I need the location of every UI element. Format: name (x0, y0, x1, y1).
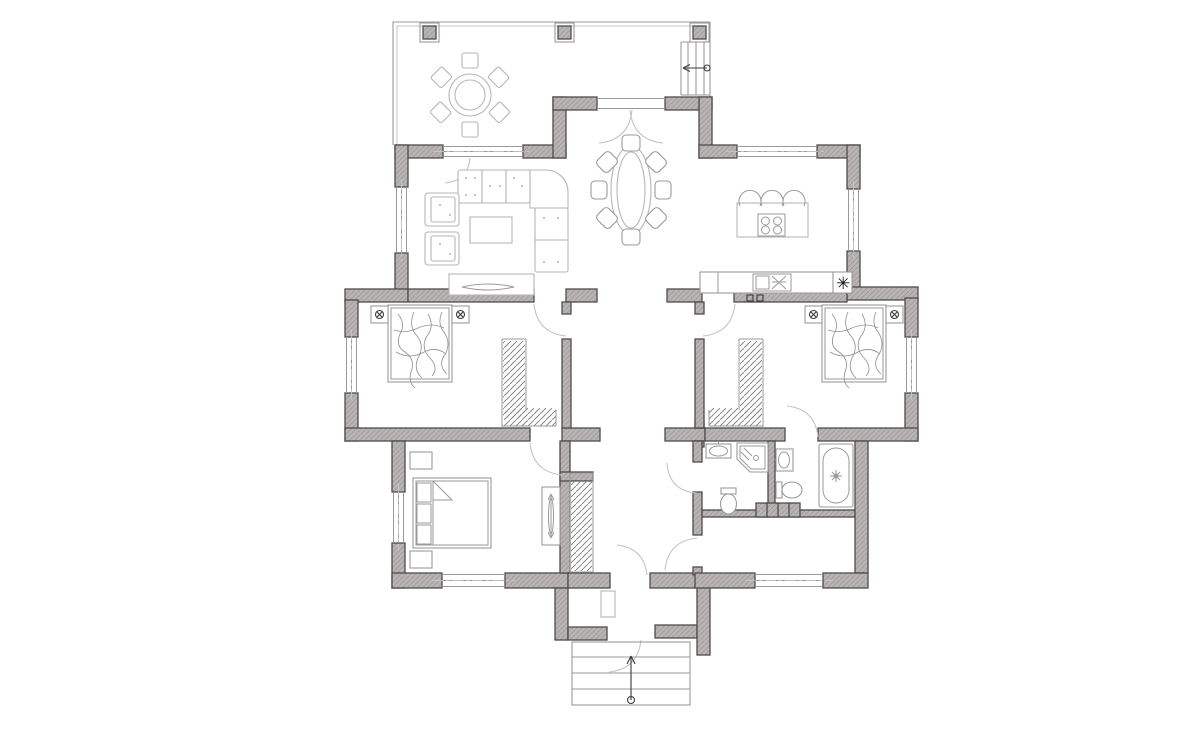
window-bedroom-lower-left (394, 484, 404, 551)
bedroom-left (371, 305, 556, 428)
terrace-round-table (449, 74, 491, 116)
wall (555, 588, 568, 640)
nightstand (410, 452, 432, 469)
door-bedroom-lower (530, 443, 562, 475)
chair (430, 66, 452, 88)
wall (855, 441, 868, 573)
washbasin (706, 442, 731, 458)
chair (595, 206, 619, 230)
toilet (721, 488, 737, 514)
closet (570, 473, 593, 572)
living-room (425, 170, 568, 295)
window-kitchen-right (849, 181, 859, 259)
door-bathroom-ensuite (787, 406, 818, 437)
nightstand-with-lamp (805, 306, 822, 323)
wall (665, 428, 705, 441)
wall (650, 573, 697, 588)
wall (560, 441, 570, 573)
terrace (393, 22, 710, 145)
wall (345, 428, 530, 441)
radiator (756, 503, 800, 517)
corner-shower (737, 443, 768, 472)
partition-wall (695, 339, 704, 428)
entrance-door (609, 640, 641, 672)
window-bedroom-left (347, 329, 357, 401)
chair (488, 101, 510, 123)
chair (644, 150, 668, 174)
dining-chairs (591, 135, 671, 245)
wall (566, 289, 597, 302)
window-bedroom-lower-bottom (432, 575, 515, 587)
chair (622, 135, 640, 151)
kitchen-counter (700, 272, 833, 293)
wall (568, 573, 610, 588)
column (555, 23, 574, 42)
door-bedroom-left (534, 304, 566, 336)
wall-pier (562, 302, 571, 314)
wall-pier (695, 302, 704, 314)
toilet (776, 482, 802, 498)
vestibule-entry (572, 591, 690, 705)
wall (818, 428, 918, 441)
chair (462, 122, 478, 137)
column (420, 23, 439, 42)
wall (568, 627, 607, 640)
kitchen-island (737, 203, 808, 237)
vestibule-cabinet (601, 591, 615, 617)
nightstand-with-lamp (886, 306, 903, 323)
walk-in-closet (502, 339, 556, 428)
window-bedroom-right (907, 329, 917, 401)
window-living-terrace (433, 147, 533, 157)
bathtub (819, 444, 853, 507)
floor-plan-canvas: ✳ (0, 0, 1200, 749)
chair (430, 101, 452, 123)
boiler-asterisk: ✳ (836, 274, 850, 294)
window-kitchen-top (727, 147, 827, 157)
boiler-symbol: ✳ (833, 272, 852, 294)
chair (595, 150, 619, 174)
wall (395, 253, 408, 291)
window-hall-bottom (745, 575, 833, 587)
partition-wall (693, 492, 702, 535)
chair (622, 229, 640, 245)
front-steps (572, 642, 690, 705)
partition-wall (693, 441, 702, 462)
double-bed (413, 478, 491, 548)
double-bed (822, 305, 886, 388)
door-shower-room (667, 463, 697, 493)
window-living-left (397, 179, 407, 261)
double-bed (388, 305, 452, 388)
wall (655, 625, 697, 638)
wall (667, 289, 702, 302)
terrace-chairs (430, 53, 511, 137)
chair (462, 53, 478, 68)
entry-direction-arrow (627, 656, 635, 704)
armchair (425, 193, 459, 226)
chair (488, 66, 510, 88)
dining-room (591, 135, 671, 245)
terrace-outline (393, 22, 710, 145)
bedroom-right (709, 305, 903, 428)
nightstand (410, 551, 432, 568)
dresser-with-mirror (542, 487, 560, 545)
washbasin (774, 449, 793, 471)
door-vestibule (617, 545, 647, 575)
armchair (425, 232, 459, 265)
partition-wall (562, 339, 571, 428)
terrace-side-steps (681, 42, 710, 95)
door-utility-hall (665, 538, 697, 570)
coffee-table (470, 217, 512, 243)
nightstand-with-lamp (452, 306, 469, 323)
chair (591, 181, 607, 199)
wall (562, 428, 600, 441)
column (690, 23, 709, 42)
window-dining-terrace (597, 99, 665, 109)
tv-stand (449, 274, 534, 295)
floor-plan-drawing: ✳ (0, 0, 1200, 749)
wall (705, 428, 785, 441)
nightstand-with-lamp (371, 306, 388, 323)
kitchen: ✳ (700, 190, 852, 301)
door-bedroom-right (703, 304, 735, 336)
chair (655, 181, 671, 199)
chair (644, 206, 668, 230)
walk-in-closet (709, 339, 763, 428)
wall (553, 97, 597, 110)
